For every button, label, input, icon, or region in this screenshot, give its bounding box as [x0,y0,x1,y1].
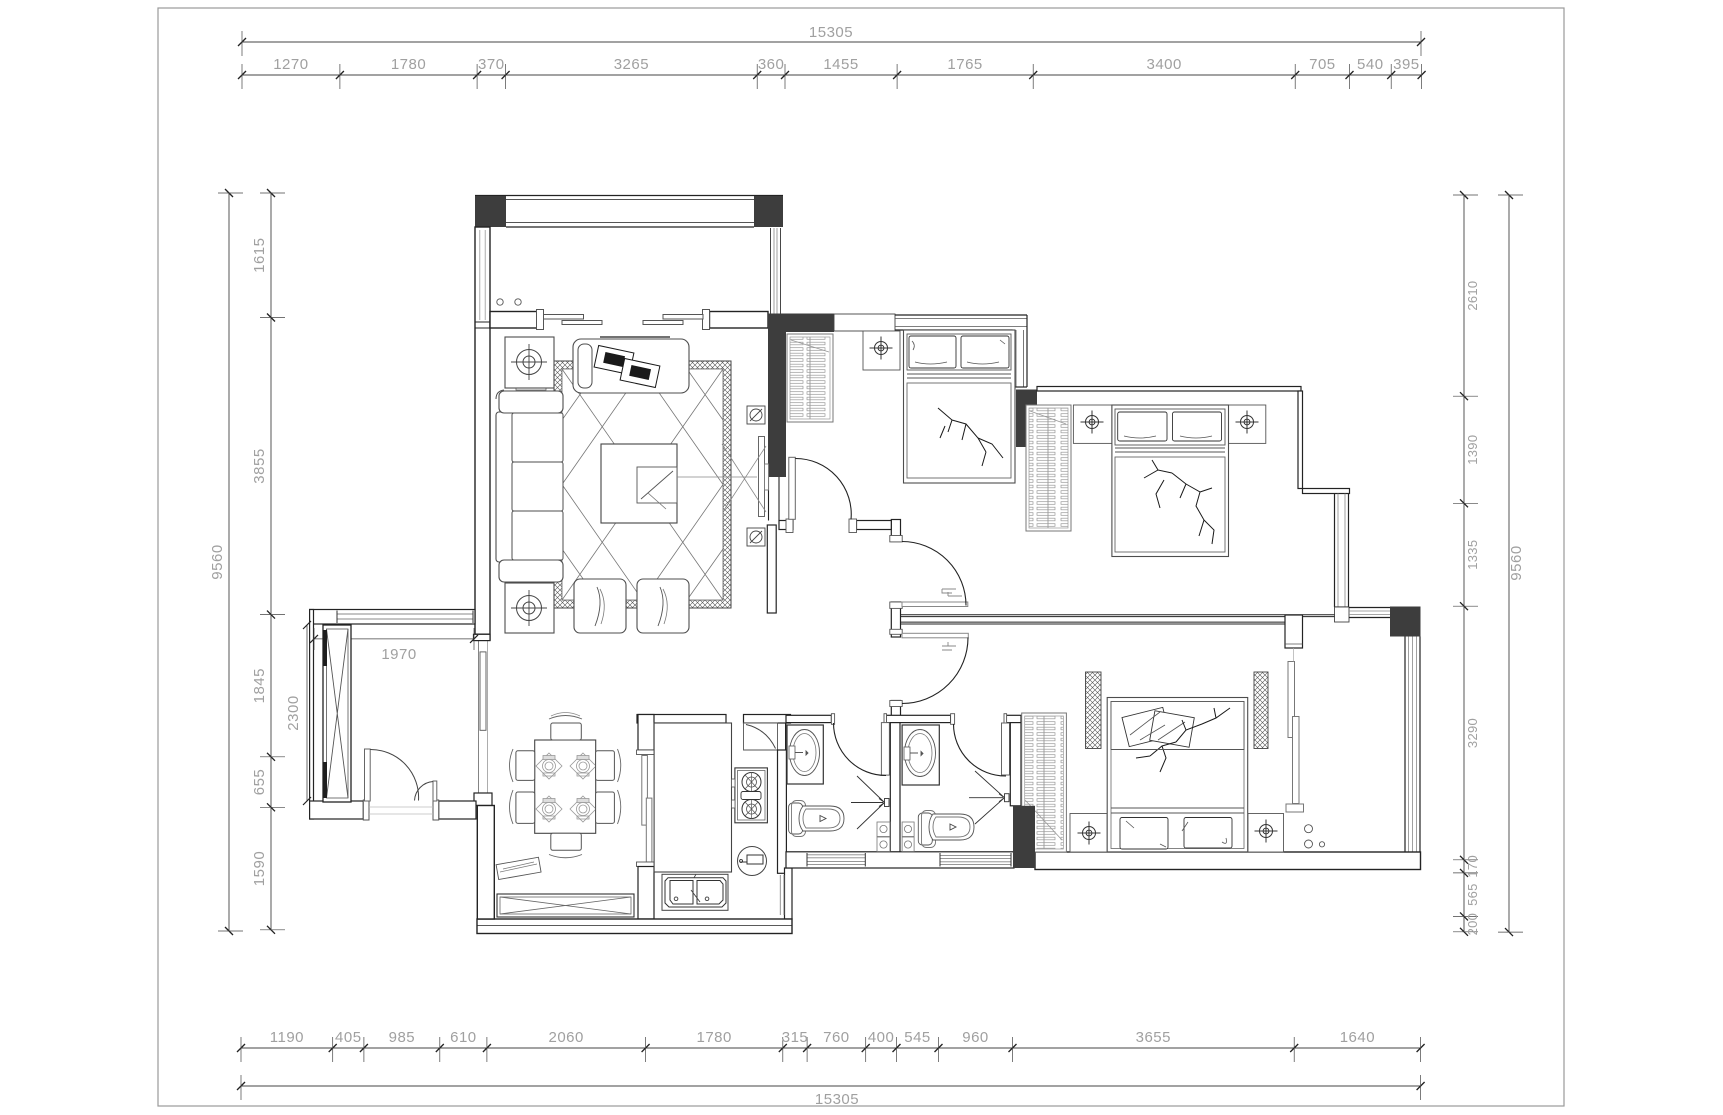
svg-text:610: 610 [450,1029,477,1046]
svg-text:370: 370 [478,56,505,73]
svg-text:315: 315 [782,1029,809,1046]
svg-text:960: 960 [962,1029,989,1046]
svg-text:1590: 1590 [251,851,268,886]
svg-text:705: 705 [1309,56,1336,73]
svg-text:1640: 1640 [1340,1029,1375,1046]
svg-text:400: 400 [868,1029,895,1046]
svg-text:3655: 3655 [1136,1029,1171,1046]
svg-text:395: 395 [1393,56,1420,73]
svg-text:360: 360 [758,56,785,73]
svg-text:2610: 2610 [1465,281,1480,311]
svg-text:3265: 3265 [614,56,649,73]
svg-text:9560: 9560 [1508,545,1525,580]
svg-text:405: 405 [335,1029,362,1046]
svg-text:1615: 1615 [251,238,268,273]
svg-text:1270: 1270 [273,56,308,73]
svg-text:1845: 1845 [251,668,268,703]
svg-text:1765: 1765 [947,56,982,73]
svg-text:15305: 15305 [809,24,853,41]
svg-text:170: 170 [1465,855,1480,878]
svg-text:3855: 3855 [251,448,268,483]
svg-text:1390: 1390 [1465,435,1480,465]
svg-text:3400: 3400 [1147,56,1182,73]
svg-text:9560: 9560 [209,544,226,579]
svg-text:760: 760 [823,1029,850,1046]
svg-text:1780: 1780 [697,1029,732,1046]
svg-text:3290: 3290 [1465,718,1480,748]
svg-text:565: 565 [1465,883,1480,906]
svg-text:15305: 15305 [815,1091,859,1108]
svg-text:1335: 1335 [1465,540,1480,570]
svg-text:1190: 1190 [270,1029,304,1046]
svg-text:2300: 2300 [285,695,302,730]
svg-text:655: 655 [251,769,268,796]
svg-text:1455: 1455 [823,56,858,73]
svg-text:985: 985 [389,1029,416,1046]
svg-text:2060: 2060 [549,1029,584,1046]
svg-text:1780: 1780 [391,56,426,73]
svg-text:1970: 1970 [381,646,416,663]
svg-text:545: 545 [904,1029,931,1046]
svg-text:200: 200 [1465,913,1480,936]
svg-text:540: 540 [1357,56,1384,73]
